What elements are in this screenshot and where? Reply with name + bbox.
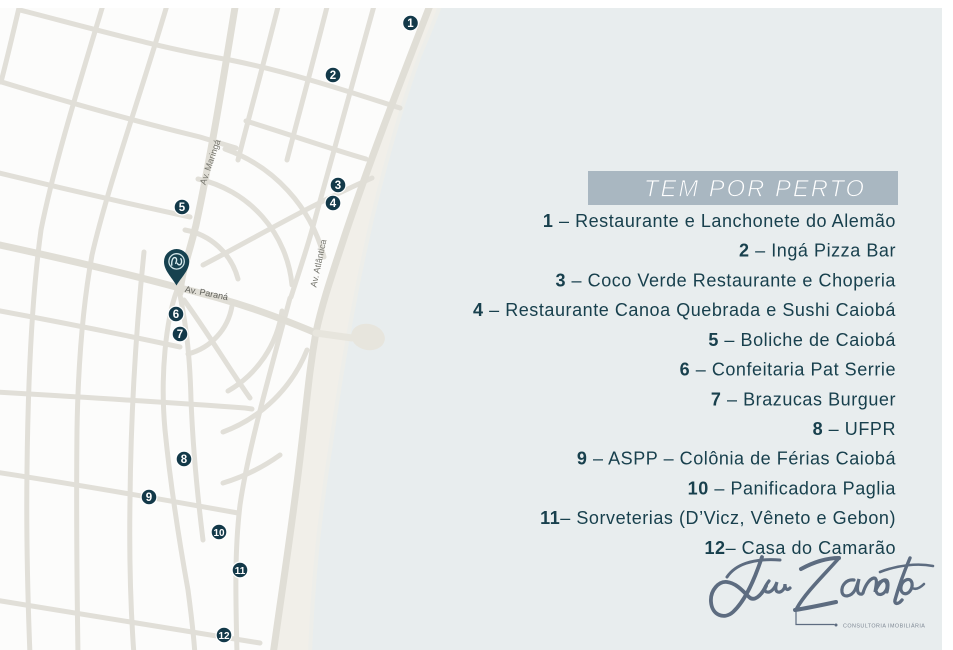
svg-text:8 – UFPR: 8 – UFPR: [813, 419, 896, 439]
svg-text:TEM POR PERTO: TEM POR PERTO: [644, 176, 866, 203]
svg-text:5: 5: [179, 202, 186, 214]
svg-text:9 – ASPP – Colônia de Férias C: 9 – ASPP – Colônia de Férias Caiobá: [577, 449, 897, 469]
svg-text:2: 2: [330, 70, 336, 82]
svg-text:12: 12: [218, 631, 230, 642]
svg-text:1 – Restaurante e Lanchonete d: 1 – Restaurante e Lanchonete do Alemão: [543, 211, 896, 231]
svg-text:6 – Confeitaria Pat Serrie: 6 – Confeitaria Pat Serrie: [680, 360, 896, 380]
svg-text:4: 4: [330, 198, 337, 210]
svg-text:3 – Coco Verde Restaurante e C: 3 – Coco Verde Restaurante e Choperia: [555, 270, 896, 290]
svg-text:4 – Restaurante Canoa Quebrada: 4 – Restaurante Canoa Quebrada e Sushi C…: [473, 300, 896, 320]
svg-text:10 – Panificadora Paglia: 10 – Panificadora Paglia: [688, 478, 897, 498]
svg-text:12– Casa do Camarão: 12– Casa do Camarão: [704, 538, 896, 558]
svg-text:1: 1: [407, 18, 414, 30]
svg-text:3: 3: [335, 180, 341, 192]
svg-text:5 – Boliche de Caiobá: 5 – Boliche de Caiobá: [708, 330, 896, 350]
svg-text:10: 10: [213, 528, 225, 539]
svg-text:8: 8: [181, 454, 188, 466]
svg-text:9: 9: [146, 492, 152, 504]
svg-text:11: 11: [235, 566, 246, 577]
svg-text:7: 7: [177, 329, 183, 341]
svg-text:6: 6: [173, 309, 179, 321]
svg-text:7 – Brazucas Burguer: 7 – Brazucas Burguer: [711, 389, 896, 409]
svg-text:11– Sorveterias (D’Vicz, Vênet: 11– Sorveterias (D’Vicz, Vêneto e Gebon): [540, 508, 896, 528]
svg-text:CONSULTORIA IMOBILIÁRIA: CONSULTORIA IMOBILIÁRIA: [843, 623, 925, 630]
svg-text:2 – Ingá Pizza Bar: 2 – Ingá Pizza Bar: [739, 241, 896, 261]
